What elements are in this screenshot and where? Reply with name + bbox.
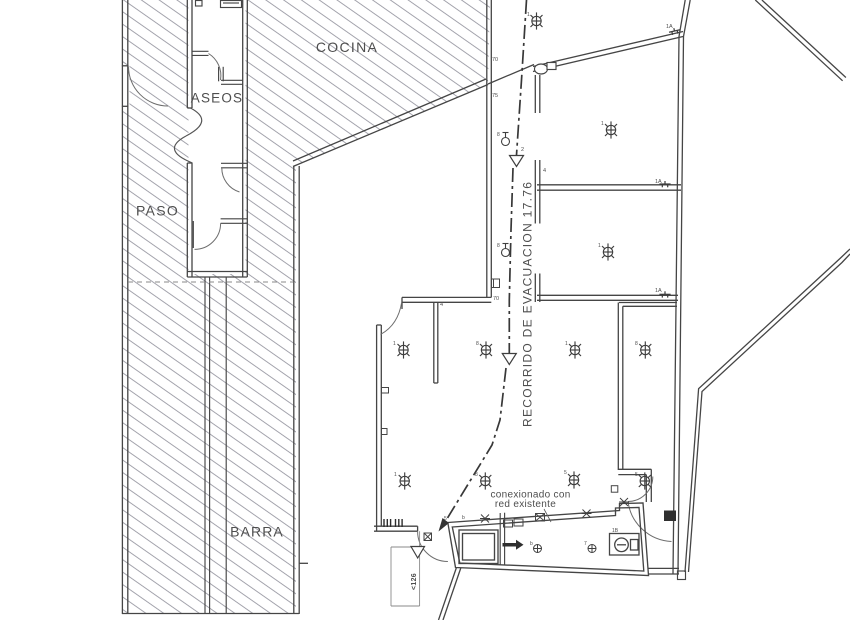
svg-text:5: 5 bbox=[564, 470, 567, 476]
svg-text:7: 7 bbox=[584, 541, 587, 547]
svg-text:1A: 1A bbox=[655, 179, 662, 185]
svg-text:1A: 1A bbox=[666, 24, 673, 30]
svg-text:1: 1 bbox=[598, 243, 601, 249]
svg-text:5: 5 bbox=[444, 516, 447, 522]
svg-text:75: 75 bbox=[492, 93, 498, 99]
svg-text:1: 1 bbox=[565, 341, 568, 347]
svg-text:1: 1 bbox=[527, 12, 530, 18]
svg-text:4: 4 bbox=[440, 302, 443, 308]
svg-text:5: 5 bbox=[635, 472, 638, 478]
svg-text:COCINA: COCINA bbox=[316, 39, 378, 55]
svg-text:RECORRIDO DE EVACUACION 17.76: RECORRIDO DE EVACUACION 17.76 bbox=[521, 181, 535, 427]
svg-text:red existente: red existente bbox=[495, 499, 556, 510]
svg-text:4: 4 bbox=[543, 168, 546, 174]
svg-text:8: 8 bbox=[475, 472, 478, 478]
svg-text:1: 1 bbox=[601, 121, 604, 127]
svg-text:1A: 1A bbox=[655, 288, 662, 294]
svg-text:70: 70 bbox=[492, 57, 498, 63]
svg-text:1B: 1B bbox=[612, 528, 619, 534]
svg-text:8: 8 bbox=[476, 341, 479, 347]
svg-text:2: 2 bbox=[521, 147, 524, 153]
svg-text:PASO: PASO bbox=[136, 203, 179, 219]
svg-text:8: 8 bbox=[497, 243, 500, 249]
svg-text:b: b bbox=[462, 515, 465, 521]
svg-text:70: 70 bbox=[493, 296, 499, 302]
svg-text:1: 1 bbox=[393, 341, 396, 347]
svg-text:1: 1 bbox=[394, 472, 397, 478]
svg-text:b: b bbox=[530, 541, 533, 547]
svg-text:BARRA: BARRA bbox=[230, 524, 284, 540]
svg-text:8: 8 bbox=[635, 341, 638, 347]
svg-text:<126: <126 bbox=[411, 573, 418, 590]
svg-text:ASEOS: ASEOS bbox=[191, 91, 244, 106]
svg-text:8: 8 bbox=[497, 132, 500, 138]
